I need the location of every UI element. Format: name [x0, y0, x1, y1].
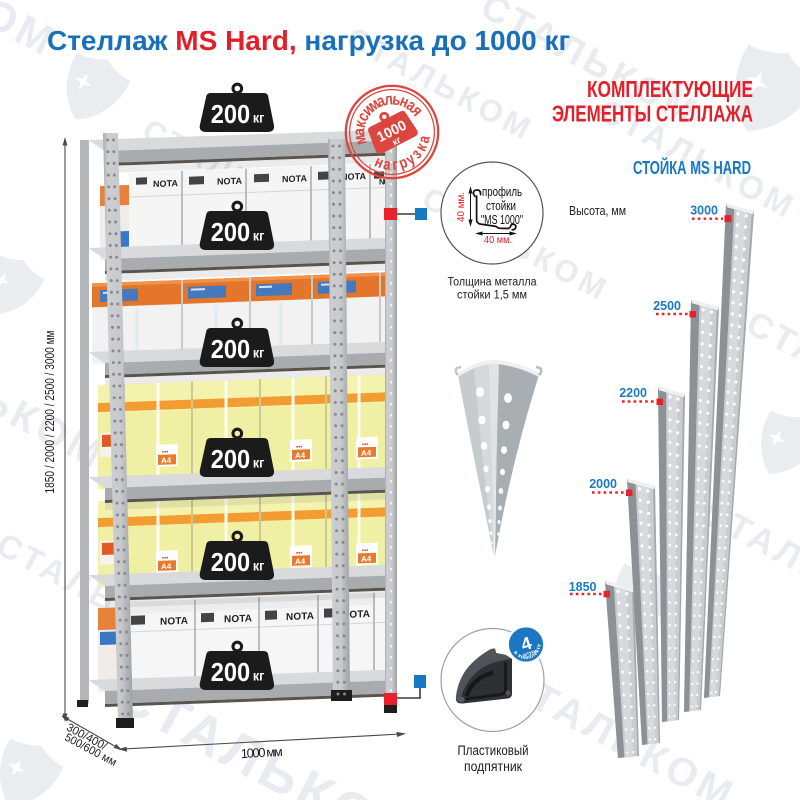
svg-text:A4: A4 [361, 554, 372, 563]
svg-text:1850 / 2000 / 2200 / 2500 / 30: 1850 / 2000 / 2200 / 2500 / 3000 мм [42, 330, 57, 493]
svg-text:подпятник: подпятник [464, 759, 522, 774]
svg-text:40 мм.: 40 мм. [455, 192, 467, 222]
svg-text:▪▪▪: ▪▪▪ [296, 550, 302, 556]
svg-text:1000 мм: 1000 мм [240, 744, 283, 761]
svg-text:Стеллаж MS Hard, нагрузка до 1: Стеллаж MS Hard, нагрузка до 1000 кг [47, 25, 570, 56]
svg-text:2200: 2200 [619, 386, 647, 400]
svg-text:NOTA: NOTA [160, 616, 188, 628]
svg-text:NOTA: NOTA [282, 173, 307, 184]
svg-text:200: 200 [211, 101, 251, 129]
svg-text:A4: A4 [161, 456, 172, 465]
svg-text:NOTA: NOTA [217, 176, 242, 187]
svg-text:NOTA: NOTA [153, 178, 178, 189]
svg-text:A4: A4 [295, 451, 306, 460]
svg-text:▪▪▪: ▪▪▪ [162, 555, 168, 561]
svg-text:▪▪▪: ▪▪▪ [162, 449, 168, 455]
svg-text:"MS 1000": "MS 1000" [481, 213, 523, 227]
svg-text:стойки 1,5 мм: стойки 1,5 мм [457, 290, 527, 302]
svg-text:Высота, мм: Высота, мм [569, 204, 626, 218]
svg-text:2000: 2000 [589, 477, 617, 491]
svg-text:ЭЛЕМЕНТЫ СТЕЛЛАЖА: ЭЛЕМЕНТЫ СТЕЛЛАЖА [552, 101, 753, 127]
svg-text:3000: 3000 [690, 204, 718, 218]
svg-text:A4: A4 [161, 562, 172, 571]
svg-text:▪▪▪: ▪▪▪ [362, 442, 368, 448]
svg-text:стойки: стойки [486, 199, 516, 213]
svg-text:A4: A4 [361, 448, 372, 457]
svg-text:NOTA: NOTA [286, 611, 314, 623]
svg-text:1850: 1850 [569, 580, 597, 594]
svg-text:2500: 2500 [653, 299, 681, 313]
svg-text:A4: A4 [295, 557, 306, 566]
svg-text:NOTA: NOTA [224, 613, 252, 625]
svg-text:профиль: профиль [482, 185, 522, 199]
svg-text:Толщина металла: Толщина металла [448, 277, 538, 289]
svg-text:КОМПЛЕКТУЮЩИЕ: КОМПЛЕКТУЮЩИЕ [587, 76, 753, 102]
svg-text:СТОЙКА MS HARD: СТОЙКА MS HARD [633, 157, 751, 178]
svg-text:▪▪▪: ▪▪▪ [362, 548, 368, 554]
svg-text:Пластиковый: Пластиковый [458, 743, 529, 758]
svg-text:40 мм.: 40 мм. [484, 234, 512, 246]
svg-text:▪▪▪: ▪▪▪ [296, 444, 302, 450]
svg-text:кг: кг [253, 110, 265, 126]
